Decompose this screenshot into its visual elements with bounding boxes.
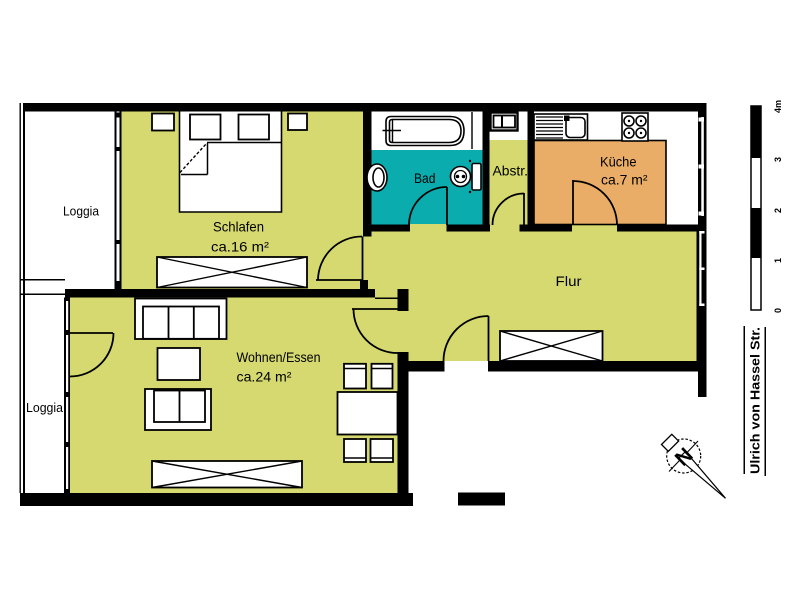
svg-text:Küche: Küche [600, 154, 637, 170]
svg-text:Loggia: Loggia [63, 204, 100, 219]
svg-text:0: 0 [773, 308, 783, 313]
svg-text:ca.7 m²: ca.7 m² [601, 172, 648, 188]
svg-text:ca.24 m²: ca.24 m² [237, 369, 292, 385]
svg-text:Loggia: Loggia [26, 400, 64, 415]
svg-text:2: 2 [773, 208, 783, 213]
svg-text:1: 1 [773, 258, 783, 263]
svg-text:Ulrich von Hassel Str.: Ulrich von Hassel Str. [748, 327, 763, 474]
svg-text:Wohnen/Essen: Wohnen/Essen [237, 349, 321, 365]
svg-text:Abstr.: Abstr. [493, 163, 529, 179]
svg-text:3: 3 [773, 157, 783, 162]
svg-text:Schlafen: Schlafen [213, 219, 264, 235]
svg-text:Flur: Flur [556, 273, 582, 289]
svg-text:Bad: Bad [414, 170, 436, 186]
svg-text:4m: 4m [773, 100, 783, 113]
svg-text:ca.16 m²: ca.16 m² [211, 239, 269, 255]
